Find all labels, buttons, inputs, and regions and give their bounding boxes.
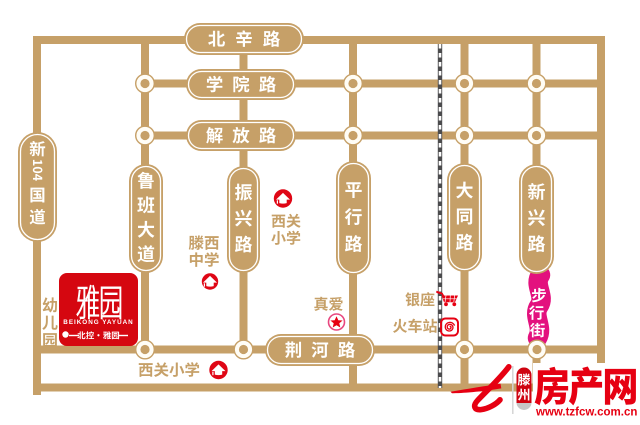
svg-text:BEIKONG YAYUAN: BEIKONG YAYUAN xyxy=(63,319,133,326)
svg-text:www.tzfcw.com.cn: www.tzfcw.com.cn xyxy=(535,407,637,419)
